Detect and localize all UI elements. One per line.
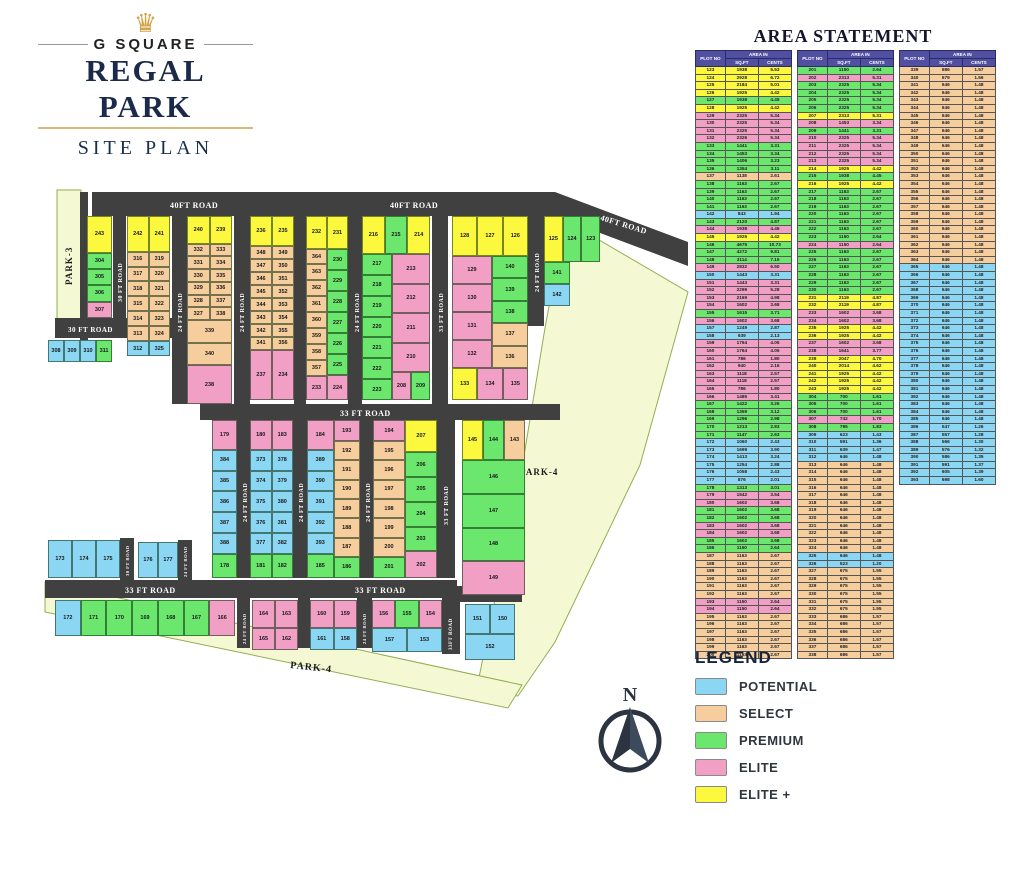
- legend: LEGEND POTENTIALSELECTPREMIUMELITEELITE …: [695, 648, 895, 813]
- plot-313: 313: [127, 326, 149, 341]
- table-row: 3316751.55: [798, 598, 894, 606]
- plot-159: 159: [334, 600, 358, 628]
- plot-304: 304: [87, 253, 112, 269]
- col-header-plot: PLOT NO: [798, 51, 828, 67]
- table-row: 24319254.42: [798, 385, 894, 393]
- plot-171: 171: [81, 600, 107, 636]
- table-row: 15917644.05: [696, 340, 792, 348]
- plot-206: 206: [405, 452, 437, 477]
- legend-item: POTENTIAL: [695, 678, 895, 695]
- table-row: 3356861.57: [798, 628, 894, 636]
- table-row: 18416023.68: [696, 530, 792, 538]
- table-row: 15321694.98: [696, 294, 792, 302]
- plot-382: 382: [272, 533, 294, 554]
- table-row: 14419384.45: [696, 226, 792, 234]
- plot-234: 234: [272, 350, 294, 400]
- legend-label: PREMIUM: [739, 733, 804, 748]
- table-row: 3676461.48: [900, 279, 996, 287]
- table-row: 3826461.48: [900, 393, 996, 401]
- plot-201: 201: [373, 557, 405, 578]
- plot-345: 345: [250, 285, 272, 298]
- plot-block: 141142: [544, 262, 570, 306]
- plot-221: 221: [362, 337, 392, 358]
- table-row: 3456461.48: [900, 112, 996, 120]
- compass-north-label: N: [623, 684, 638, 706]
- table-row: 3246461.48: [798, 545, 894, 553]
- plot-block: 172171170169168167166: [55, 600, 235, 636]
- table-row: 3586461.48: [900, 211, 996, 219]
- table-row: 20323255.34: [798, 82, 894, 90]
- table-row: 3096231.43: [798, 431, 894, 439]
- table-row: 18611502.64: [696, 545, 792, 553]
- plot-142: 142: [544, 284, 570, 306]
- plot-336: 336: [210, 282, 233, 295]
- table-row: 3396861.57: [900, 67, 996, 75]
- plot-322: 322: [149, 296, 171, 311]
- plot-block: 2403323313303293283272393333343353363373…: [187, 216, 232, 320]
- table-row: 21711632.67: [798, 188, 894, 196]
- plot-344: 344: [250, 298, 272, 311]
- plot-224: 224: [327, 375, 348, 400]
- plot-327: 327: [187, 307, 210, 320]
- logo-brand: G SQUARE: [38, 36, 253, 53]
- plot-207: 207: [405, 420, 437, 452]
- plot-block: 217218219220221222223: [362, 254, 392, 400]
- table-row: 3196461.48: [798, 507, 894, 515]
- table-row: 3466461.48: [900, 120, 996, 128]
- plot-block: 179384385386387388178: [212, 420, 237, 578]
- table-row: 15014433.31: [696, 272, 792, 280]
- table-row: 23011632.67: [798, 287, 894, 295]
- plot-217: 217: [362, 254, 392, 275]
- table-row: 13023255.34: [696, 120, 792, 128]
- table-row: 12719384.45: [696, 97, 792, 105]
- plot-138: 138: [492, 301, 528, 323]
- plot-172: 172: [55, 600, 81, 636]
- plot-209: 209: [411, 372, 430, 400]
- table-row: 21811632.67: [798, 196, 894, 204]
- table-row: 3146461.48: [798, 469, 894, 477]
- plot-192: 192: [334, 441, 361, 460]
- plot-187: 187: [334, 538, 361, 557]
- plot-180: 180: [250, 420, 272, 450]
- table-row: 22111632.67: [798, 218, 894, 226]
- legend-item: ELITE +: [695, 786, 895, 803]
- plot-346: 346: [250, 272, 272, 285]
- table-row: 12619254.42: [696, 89, 792, 97]
- col-header-cents: CENTS: [860, 59, 893, 67]
- table-row: 16017644.05: [696, 347, 792, 355]
- plot-226: 226: [327, 333, 348, 354]
- legend-swatch: [695, 786, 727, 803]
- plot-block: 237234: [250, 350, 294, 400]
- legend-item: PREMIUM: [695, 732, 895, 749]
- table-row: 3136461.48: [798, 461, 894, 469]
- table-row: 21419254.42: [798, 165, 894, 173]
- plot-316: 316: [127, 252, 149, 267]
- area-table-2: PLOT NO AREA IN SQ.FT CENTS 20111502.642…: [797, 50, 894, 659]
- plot-block: 2363483473463453443433423412353493503513…: [250, 216, 294, 350]
- table-row: 24020144.62: [798, 363, 894, 371]
- plot-135: 135: [503, 368, 528, 400]
- table-row: 3265231.20: [798, 560, 894, 568]
- table-row: 15712492.87: [696, 325, 792, 333]
- plot-318: 318: [127, 281, 149, 296]
- plot-148: 148: [462, 528, 525, 562]
- plot-384: 384: [212, 450, 237, 471]
- table-row: 14111632.67: [696, 203, 792, 211]
- plot-200: 200: [373, 538, 405, 557]
- plot-390: 390: [307, 471, 334, 492]
- table-row: 1629402.16: [696, 363, 792, 371]
- plot-328: 328: [187, 295, 210, 308]
- plot-305: 305: [87, 269, 112, 285]
- plot-186: 186: [334, 557, 361, 578]
- plot-137: 137: [492, 323, 528, 345]
- table-row: 12319385.53: [696, 67, 792, 75]
- table-row: 1778762.01: [696, 477, 792, 485]
- table-row: 18016023.68: [696, 499, 792, 507]
- plot-243: 243: [87, 216, 112, 253]
- plot-189: 189: [334, 499, 361, 518]
- plot-374: 374: [250, 471, 272, 492]
- table-row: 17316993.90: [696, 446, 792, 454]
- table-row: 17512542.88: [696, 461, 792, 469]
- table-row: 17210602.43: [696, 439, 792, 447]
- col-header-sqft: SQ.FT: [929, 59, 962, 67]
- plot-block: 339340238: [187, 320, 232, 404]
- table-row: 17610582.43: [696, 469, 792, 477]
- plot-188: 188: [334, 518, 361, 537]
- table-row: 16311182.57: [696, 370, 792, 378]
- plot-308: 308: [48, 340, 64, 362]
- plot-218: 218: [362, 275, 392, 296]
- plot-block: 1803733743753763771811833783793803813821…: [250, 420, 293, 578]
- table-row: 3606461.48: [900, 226, 996, 234]
- table-row: 3636461.48: [900, 249, 996, 257]
- table-row: 13811632.67: [696, 180, 792, 188]
- table-row: 13123255.34: [696, 127, 792, 135]
- table-row: 3486461.48: [900, 135, 996, 143]
- table-row: 16614853.41: [696, 393, 792, 401]
- plot-223: 223: [362, 379, 392, 400]
- table-row: 3895761.32: [900, 446, 996, 454]
- plot-356: 356: [272, 337, 294, 350]
- table-row: 13711382.61: [696, 173, 792, 181]
- plot-block: 213212211210: [392, 254, 430, 372]
- table-row: 3256461.48: [798, 553, 894, 561]
- plot-143: 143: [504, 420, 525, 460]
- plot-339: 339: [187, 320, 232, 343]
- table-row: 3686461.48: [900, 287, 996, 295]
- plot-360: 360: [306, 312, 327, 328]
- plot-190: 190: [334, 480, 361, 499]
- plot-149: 149: [462, 561, 525, 595]
- table-row: 3736461.48: [900, 325, 996, 333]
- table-row: 3716461.48: [900, 310, 996, 318]
- plot-139: 139: [492, 278, 528, 300]
- table-row: 3936981.60: [900, 477, 996, 485]
- plot-blocks-layer: 2433043053063073083093103112423163173183…: [40, 180, 700, 710]
- plot-175: 175: [96, 540, 120, 578]
- table-row: 3496461.48: [900, 142, 996, 150]
- plot-block: 125124123: [544, 216, 600, 262]
- plot-125: 125: [544, 216, 563, 262]
- table-row: 22311502.64: [798, 234, 894, 242]
- plot-block: 161158: [310, 628, 357, 650]
- plot-392: 392: [307, 512, 334, 533]
- table-row: 3516461.48: [900, 158, 996, 166]
- table-row: 3446461.48: [900, 104, 996, 112]
- table-row: 3286751.55: [798, 575, 894, 583]
- table-row: 3536461.48: [900, 173, 996, 181]
- plot-block: 173174175: [48, 540, 120, 578]
- table-row: 3276751.55: [798, 568, 894, 576]
- plot-167: 167: [184, 600, 210, 636]
- legend-swatch: [695, 732, 727, 749]
- table-row: 3666461.48: [900, 272, 996, 280]
- plot-347: 347: [250, 259, 272, 272]
- table-row: 14321204.87: [696, 218, 792, 226]
- plot-161: 161: [310, 628, 334, 650]
- plot-335: 335: [210, 269, 233, 282]
- plot-124: 124: [563, 216, 582, 262]
- plot-208: 208: [392, 372, 411, 400]
- table-row: 3756461.48: [900, 340, 996, 348]
- plot-block: 1941951961971981992002012072062052042032…: [373, 420, 437, 578]
- plot-378: 378: [272, 450, 294, 471]
- table-row: 3336861.57: [798, 613, 894, 621]
- table-row: 13613543.11: [696, 165, 792, 173]
- plot-157: 157: [372, 628, 407, 652]
- table-row: 3047001.61: [798, 393, 894, 401]
- plot-307: 307: [87, 302, 112, 318]
- plot-174: 174: [72, 540, 96, 578]
- plot-194: 194: [373, 420, 405, 441]
- plot-136: 136: [492, 346, 528, 368]
- table-row: 3875571.28: [900, 431, 996, 439]
- plot-386: 386: [212, 491, 237, 512]
- table-row: 12521845.01: [696, 82, 792, 90]
- plot-block: 151150: [465, 604, 515, 634]
- plot-block: 160159: [310, 600, 357, 628]
- table-row: 14519254.42: [696, 234, 792, 242]
- table-row: 15114433.31: [696, 279, 792, 287]
- table-row: 21619254.42: [798, 180, 894, 188]
- plot-155: 155: [395, 600, 418, 628]
- plot-176: 176: [138, 542, 158, 578]
- plot-152: 152: [465, 634, 515, 660]
- plot-173: 173: [48, 540, 72, 578]
- table-row: 3706461.48: [900, 302, 996, 310]
- col-header-cents: CENTS: [758, 59, 791, 67]
- plot-198: 198: [373, 499, 405, 518]
- legend-label: POTENTIAL: [739, 679, 817, 694]
- plot-block: 2323643633623613603593583572332312302292…: [306, 216, 348, 400]
- table-row: 16411182.57: [696, 378, 792, 386]
- plot-196: 196: [373, 460, 405, 479]
- plot-215: 215: [385, 216, 408, 254]
- table-row: 20423255.34: [798, 89, 894, 97]
- plot-158: 158: [334, 628, 358, 650]
- plot-144: 144: [483, 420, 504, 460]
- plot-block: 165162: [252, 628, 298, 650]
- plot-334: 334: [210, 256, 233, 269]
- plot-127: 127: [477, 216, 502, 256]
- plot-342: 342: [250, 324, 272, 337]
- table-row: 12429286.72: [696, 74, 792, 82]
- table-row: 1617861.80: [696, 355, 792, 363]
- plot-195: 195: [373, 441, 405, 460]
- table-row: 1589392.13: [696, 332, 792, 340]
- table-row: 146467510.73: [696, 241, 792, 249]
- plot-319: 319: [149, 252, 171, 267]
- table-row: 3576461.48: [900, 203, 996, 211]
- table-row: 23920474.70: [798, 355, 894, 363]
- table-row: 3566461.48: [900, 196, 996, 204]
- table-row: 3856461.48: [900, 416, 996, 424]
- plot-329: 329: [187, 282, 210, 295]
- plot-block: 145144143: [462, 420, 525, 460]
- plot-212: 212: [392, 284, 430, 314]
- plot-220: 220: [362, 317, 392, 338]
- table-row: 3166461.48: [798, 484, 894, 492]
- plot-362: 362: [306, 280, 327, 296]
- table-row: 13911632.67: [696, 188, 792, 196]
- site-plan-map: PARK-3 PARK-4 PARK-4: [40, 180, 700, 710]
- table-row: 19711632.67: [696, 628, 792, 636]
- table-row: 14011632.67: [696, 196, 792, 204]
- plot-block: 308309310311: [48, 340, 112, 362]
- plot-380: 380: [272, 491, 294, 512]
- table-row: 3126461.48: [798, 454, 894, 462]
- table-row: 20723135.31: [798, 112, 894, 120]
- plot-169: 169: [132, 600, 158, 636]
- table-row: 3596461.48: [900, 218, 996, 226]
- table-row: 18316023.68: [696, 522, 792, 530]
- plot-393: 393: [307, 533, 334, 554]
- table-row: 19111632.67: [696, 583, 792, 591]
- plot-block: 129130131132: [452, 256, 492, 368]
- col-header-area: AREA IN: [725, 51, 791, 59]
- plot-331: 331: [187, 256, 210, 269]
- plot-204: 204: [405, 502, 437, 527]
- table-row: 17111472.63: [696, 431, 792, 439]
- legend-label: ELITE: [739, 760, 778, 775]
- plot-131: 131: [452, 312, 492, 340]
- plot-314: 314: [127, 311, 149, 326]
- col-header-area: AREA IN: [929, 51, 995, 59]
- plot-164: 164: [252, 600, 275, 628]
- table-row: 20814533.34: [798, 120, 894, 128]
- plot-377: 377: [250, 533, 272, 554]
- table-row: 22511632.67: [798, 249, 894, 257]
- plot-block: 2423163173183153143133122413193203213223…: [127, 216, 170, 356]
- table-row: 3296751.55: [798, 583, 894, 591]
- table-row: 3206461.48: [798, 515, 894, 523]
- table-row: 15516153.71: [696, 310, 792, 318]
- table-row: 3077421.70: [798, 416, 894, 424]
- plot-317: 317: [127, 267, 149, 282]
- col-header-sqft: SQ.FT: [827, 59, 860, 67]
- plot-203: 203: [405, 527, 437, 552]
- plot-232: 232: [306, 216, 327, 249]
- page-title: SITE PLAN: [38, 137, 253, 160]
- table-row: 20111502.64: [798, 67, 894, 75]
- plot-150: 150: [490, 604, 515, 634]
- table-row: 23619254.42: [798, 332, 894, 340]
- plot-364: 364: [306, 249, 327, 265]
- table-row: 14928326.50: [696, 264, 792, 272]
- plot-216: 216: [362, 216, 385, 254]
- table-row: 14831147.15: [696, 256, 792, 264]
- plot-350: 350: [272, 259, 294, 272]
- plot-block: 128127126: [452, 216, 528, 256]
- plot-177: 177: [158, 542, 178, 578]
- plot-311: 311: [96, 340, 112, 362]
- table-row: 15222995.28: [696, 287, 792, 295]
- plot-133: 133: [452, 368, 477, 400]
- table-row: 3776461.48: [900, 355, 996, 363]
- plot-230: 230: [327, 249, 348, 270]
- plot-191: 191: [334, 460, 361, 479]
- col-header-area: AREA IN: [827, 51, 893, 59]
- plot-block: 176177: [138, 542, 178, 578]
- plot-193: 193: [334, 420, 361, 441]
- plot-199: 199: [373, 518, 405, 537]
- plot-235: 235: [272, 216, 294, 246]
- col-header-plot: PLOT NO: [696, 51, 726, 67]
- table-row: 24119254.42: [798, 370, 894, 378]
- plot-349: 349: [272, 246, 294, 259]
- plot-229: 229: [327, 270, 348, 291]
- plot-block: 216215214: [362, 216, 430, 254]
- plot-147: 147: [462, 494, 525, 528]
- table-row: 21323255.34: [798, 158, 894, 166]
- table-row: 3426461.48: [900, 89, 996, 97]
- table-row: 19311502.64: [696, 598, 792, 606]
- plot-385: 385: [212, 471, 237, 492]
- table-row: 18711632.67: [696, 553, 792, 561]
- col-header-cents: CENTS: [962, 59, 995, 67]
- table-row: 19611632.67: [696, 621, 792, 629]
- plot-361: 361: [306, 296, 327, 312]
- table-row: 3406791.56: [900, 74, 996, 82]
- plot-355: 355: [272, 324, 294, 337]
- plot-202: 202: [405, 551, 437, 578]
- table-row: 17012132.83: [696, 423, 792, 431]
- plot-132: 132: [452, 340, 492, 368]
- table-row: 3216461.48: [798, 522, 894, 530]
- table-row: 3057001.61: [798, 401, 894, 409]
- plot-320: 320: [149, 267, 171, 282]
- plot-238: 238: [187, 365, 232, 404]
- area-table-3: PLOT NO AREA IN SQ.FT CENTS 3396861.5734…: [899, 50, 996, 485]
- plot-240: 240: [187, 216, 210, 244]
- table-row: 3726461.48: [900, 317, 996, 325]
- table-row: 3087951.83: [798, 423, 894, 431]
- table-row: 23221194.87: [798, 302, 894, 310]
- plot-153: 153: [407, 628, 442, 652]
- table-row: 3476461.48: [900, 127, 996, 135]
- table-row: 18516023.68: [696, 537, 792, 545]
- table-row: 17813133.01: [696, 484, 792, 492]
- table-row: 18911632.67: [696, 568, 792, 576]
- table-row: 3885661.30: [900, 439, 996, 447]
- plot-211: 211: [392, 313, 430, 343]
- table-row: 17915423.54: [696, 492, 792, 500]
- table-row: 22611632.67: [798, 256, 894, 264]
